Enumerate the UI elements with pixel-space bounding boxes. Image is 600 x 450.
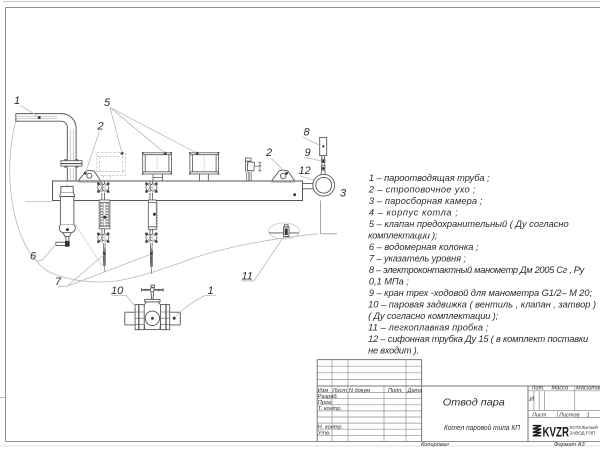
svg-text:Лист: Лист xyxy=(332,388,348,394)
svg-text:2: 2 xyxy=(265,147,272,159)
svg-text:Пров.: Пров. xyxy=(318,400,333,406)
svg-text:8: 8 xyxy=(304,127,311,139)
svg-text:Разраб.: Разраб. xyxy=(318,394,338,400)
svg-text:1: 1 xyxy=(14,95,20,107)
svg-text:5: 5 xyxy=(104,97,111,109)
svg-text:ЗАВОД РЭП: ЗАВОД РЭП xyxy=(570,431,596,436)
svg-text:Масса: Масса xyxy=(552,386,569,392)
svg-text:12: 12 xyxy=(299,165,311,177)
svg-text:Лист: Лист xyxy=(531,412,547,418)
svg-text:9: 9 xyxy=(305,147,311,159)
svg-text:Дата: Дата xyxy=(407,388,423,394)
svg-text:12 – сифонная трубка Ду 15 (: 12 – сифонная трубка Ду 15 ( в комплект … xyxy=(368,334,588,344)
svg-text:3: 3 xyxy=(340,188,347,200)
svg-text:Лит.: Лит. xyxy=(531,386,545,392)
svg-text:3 – паросборная камера ;: 3 – паросборная камера ; xyxy=(369,196,483,206)
svg-text:6 – водомерная колонка ;: 6 – водомерная колонка ; xyxy=(369,242,479,252)
svg-text:2: 2 xyxy=(97,121,104,133)
svg-text:Н. контр.: Н. контр. xyxy=(318,425,343,431)
svg-text:Формат А3: Формат А3 xyxy=(554,442,585,448)
svg-text:Отвод пара: Отвод пара xyxy=(443,397,505,409)
svg-text:( Ду согласно комплектации );: ( Ду согласно комплектации ); xyxy=(368,311,499,321)
svg-text:4 – корпус котла ;: 4 – корпус котла ; xyxy=(369,208,458,218)
svg-text:Подп.: Подп. xyxy=(388,388,403,394)
svg-text:9 – кран трех -ходовой для ма: 9 – кран трех -ходовой для манометра G1/… xyxy=(369,288,593,298)
svg-text:7 – указатель уровня ;: 7 – указатель уровня ; xyxy=(369,254,467,264)
svg-text:KVZR: KVZR xyxy=(543,424,570,440)
svg-text:не входит ).: не входит ). xyxy=(368,346,419,356)
svg-text:Утв.: Утв. xyxy=(317,431,331,437)
svg-text:1: 1 xyxy=(587,412,590,418)
svg-text:Изм: Изм xyxy=(318,388,329,394)
svg-text:5 – клапан предохранительный: 5 – клапан предохранительный ( Ду соглас… xyxy=(369,219,569,229)
svg-text:8 – электроконтактный манометр: 8 – электроконтактный манометр Дм 2005 С… xyxy=(369,265,586,275)
svg-text:Т. контр.: Т. контр. xyxy=(318,406,342,412)
svg-text:Копировал: Копировал xyxy=(421,442,450,448)
svg-text:КОТЕЛЬНЫЙ: КОТЕЛЬНЫЙ xyxy=(570,423,598,430)
svg-text:комплектации );: комплектации ); xyxy=(368,231,438,241)
svg-text:1 – пароотводящая труба ;: 1 – пароотводящая труба ; xyxy=(369,173,490,183)
svg-text:10 – паровая задвижка ( вент: 10 – паровая задвижка ( вентиль , клапан… xyxy=(368,300,596,310)
svg-text:И: И xyxy=(529,396,534,403)
svg-text:N докум: N докум xyxy=(349,388,370,394)
svg-text:2 – строповочное ухо ;: 2 – строповочное ухо ; xyxy=(368,185,476,195)
svg-text:11 – легкоплавкая пробка ;: 11 – легкоплавкая пробка ; xyxy=(368,323,489,333)
svg-text:Котел паровой типа КП: Котел паровой типа КП xyxy=(444,423,521,432)
svg-text:0,1 МПа ;: 0,1 МПа ; xyxy=(369,277,409,287)
svg-text:6: 6 xyxy=(30,251,37,263)
svg-text:Листов: Листов xyxy=(558,412,579,418)
svg-text:Масштаб: Масштаб xyxy=(576,386,600,392)
